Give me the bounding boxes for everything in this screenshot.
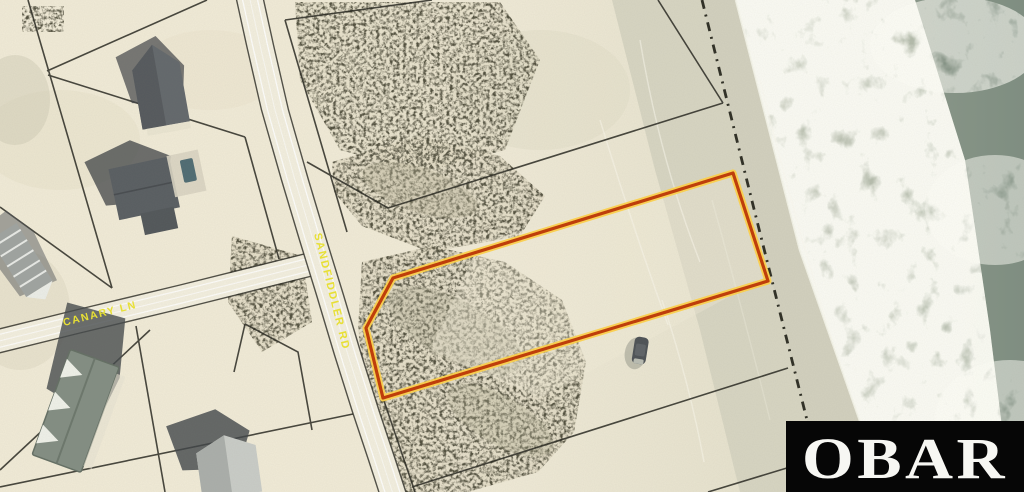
aerial-listing-photo: SANDFIDDLER RD CANARY LN OBAR [0, 0, 1024, 492]
obar-watermark-text: OBAR [802, 426, 1008, 491]
aerial-map-canvas: SANDFIDDLER RD CANARY LN OBAR [0, 0, 1024, 492]
photo-grain-overlay [0, 0, 1024, 492]
obar-watermark: OBAR [786, 421, 1024, 492]
